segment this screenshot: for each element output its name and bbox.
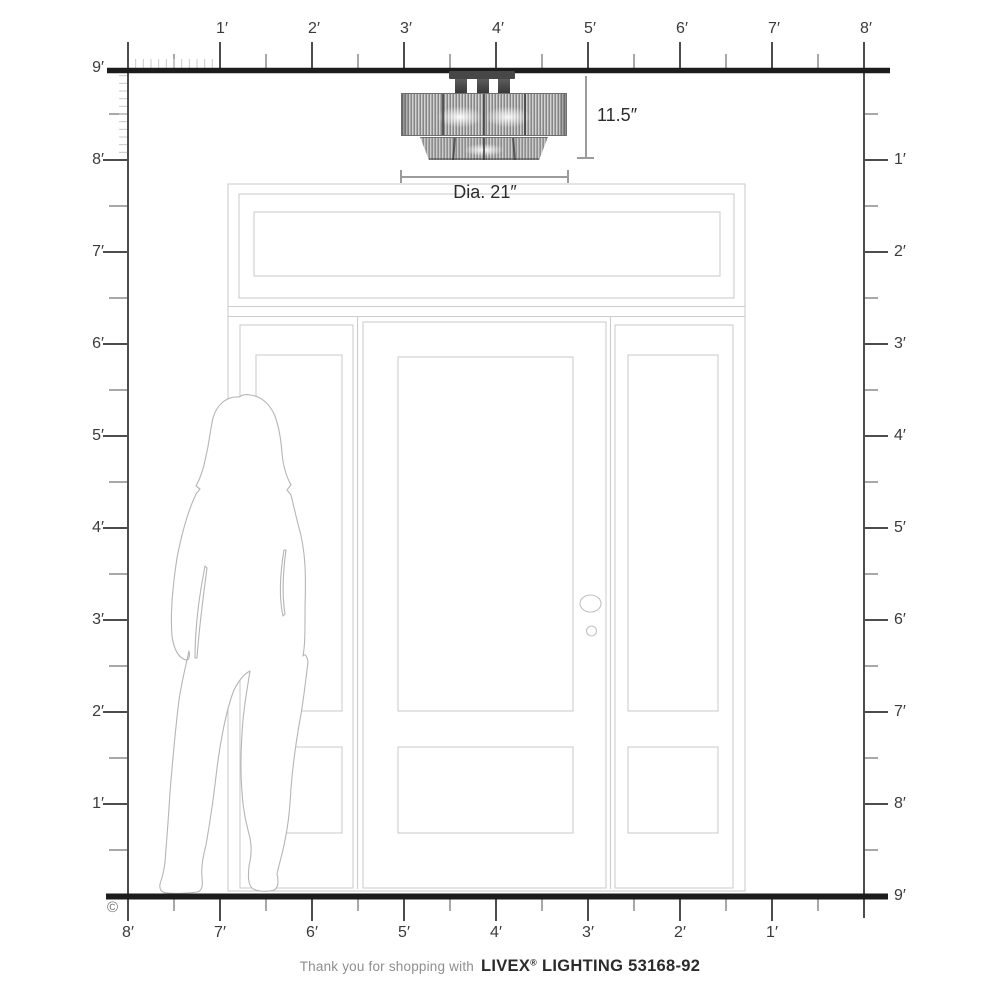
left-axis-label: 6′ (70, 335, 104, 353)
right-axis-label: 3′ (894, 335, 906, 353)
diameter-dimension-right-cap (567, 170, 569, 183)
woman-silhouette-outline (160, 395, 308, 894)
bottom-axis-label: 8′ (114, 924, 142, 942)
top-axis-label: 3′ (392, 20, 420, 38)
left-axis-label: 4′ (70, 519, 104, 537)
drum-divider (442, 94, 444, 135)
transom-frame (239, 194, 734, 298)
door-frame (363, 322, 606, 888)
left-axis-label: 3′ (70, 611, 104, 629)
left-axis-label: 9′ (70, 59, 104, 77)
top-axis-label: 8′ (852, 20, 880, 38)
left-axis-label: 2′ (70, 703, 104, 721)
tier-divider (483, 138, 485, 160)
top-axis-label: 2′ (300, 20, 328, 38)
scale-diagram-stage: 1′2′3′4′5′6′7′8′9′8′7′6′5′4′3′2′1′1′2′3′… (0, 0, 1000, 1000)
drum-divider (524, 94, 526, 135)
fixture-stem-center (477, 79, 489, 94)
right-axis-label: 7′ (894, 703, 906, 721)
height-dimension-line (585, 76, 587, 158)
top-axis-label: 7′ (760, 20, 788, 38)
height-dimension-label: 11.5″ (597, 105, 637, 126)
right-axis-label: 2′ (894, 243, 906, 261)
drum-divider (483, 94, 485, 135)
bottom-axis-label: 4′ (482, 924, 510, 942)
right-axis-label: 8′ (894, 795, 906, 813)
bottom-axis-label: 5′ (390, 924, 418, 942)
top-axis-label: 4′ (484, 20, 512, 38)
right-sidelight-glass (628, 355, 718, 711)
fixture-stem-right (498, 79, 510, 94)
right-sidelight-frame (615, 325, 733, 888)
bottom-axis-label: 2′ (666, 924, 694, 942)
footer-model-number: LIGHTING 53168-92 (542, 957, 700, 975)
footer-text: Thank you for shopping withLIVEX®LIGHTIN… (0, 957, 1000, 976)
top-axis-label: 5′ (576, 20, 604, 38)
door-deadbolt (587, 626, 597, 636)
top-axis-label: 1′ (208, 20, 236, 38)
door-drawing (228, 184, 745, 891)
ceiling-light-fixture (401, 71, 567, 163)
diameter-dimension-left-cap (400, 170, 402, 183)
door-glass (398, 357, 573, 711)
right-axis-label: 1′ (894, 151, 906, 169)
tier-divider (512, 138, 516, 160)
fixture-drum-shade (401, 93, 567, 136)
door-unit-outer-frame (228, 184, 745, 891)
tier-divider (452, 138, 456, 160)
footer-prefix: Thank you for shopping with (300, 959, 474, 974)
diameter-dimension-label: Dia. 21″ (429, 182, 541, 203)
left-axis-label: 1′ (70, 795, 104, 813)
door-panel (398, 747, 573, 833)
fixture-stem-left (455, 79, 467, 94)
bottom-axis-label: 3′ (574, 924, 602, 942)
bottom-axis-label: 6′ (298, 924, 326, 942)
right-axis-label: 6′ (894, 611, 906, 629)
height-dimension-end-cap (577, 157, 594, 159)
right-sidelight-panel (628, 747, 718, 833)
diameter-dimension-line (401, 176, 568, 178)
registered-trademark-symbol: ® (530, 958, 537, 968)
left-axis-label: 5′ (70, 427, 104, 445)
right-axis-label: 5′ (894, 519, 906, 537)
fixture-bottom-tier (420, 137, 548, 160)
right-axis-label: 4′ (894, 427, 906, 445)
footer-brand: LIVEX (481, 957, 530, 975)
transom-glass (254, 212, 720, 276)
woman-silhouette (160, 395, 308, 894)
door-handle (580, 595, 601, 612)
top-axis-label: 6′ (668, 20, 696, 38)
left-axis-label: 7′ (70, 243, 104, 261)
right-axis-label: 9′ (894, 887, 906, 905)
fixture-canopy (449, 71, 515, 79)
left-axis-label: 8′ (70, 151, 104, 169)
bottom-axis-label: 7′ (206, 924, 234, 942)
copyright-symbol: © (107, 899, 118, 916)
bottom-axis-label: 1′ (758, 924, 786, 942)
